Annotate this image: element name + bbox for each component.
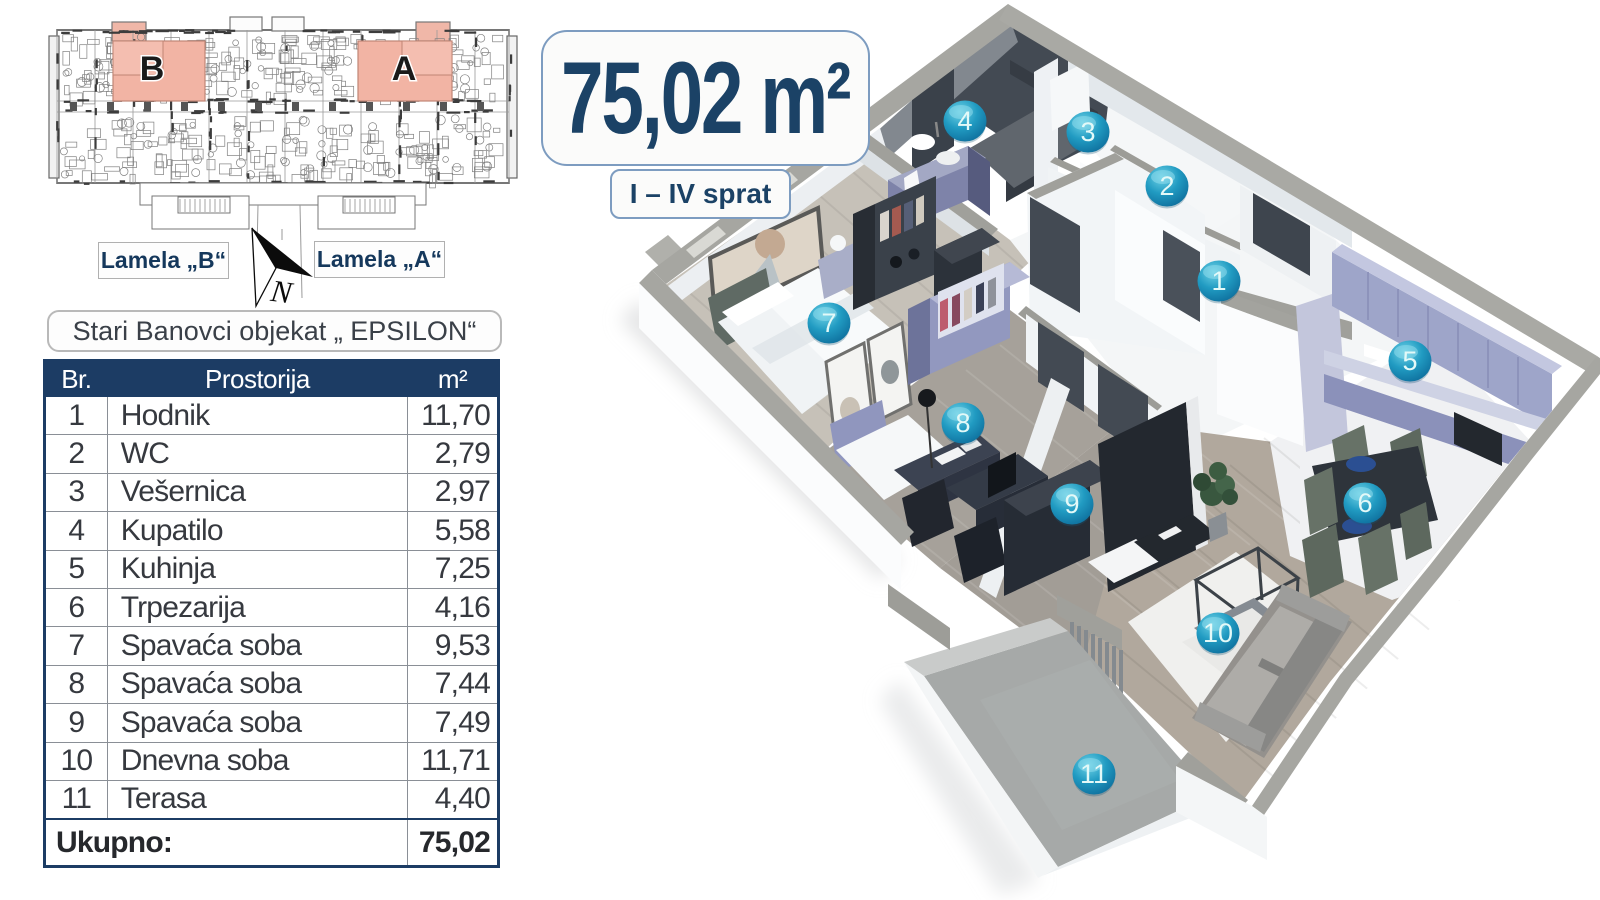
svg-text:3: 3 <box>1080 117 1095 147</box>
svg-text:5: 5 <box>1402 346 1417 376</box>
svg-text:4: 4 <box>957 106 972 136</box>
svg-text:7: 7 <box>821 308 836 338</box>
svg-text:10: 10 <box>1203 618 1233 648</box>
svg-text:1: 1 <box>1211 266 1226 296</box>
svg-text:A: A <box>392 50 417 88</box>
svg-text:N: N <box>268 273 297 310</box>
svg-text:6: 6 <box>1357 488 1372 518</box>
svg-text:B: B <box>140 50 165 88</box>
svg-text:9: 9 <box>1064 489 1079 519</box>
svg-text:2: 2 <box>1159 171 1174 201</box>
svg-text:11: 11 <box>1080 759 1108 789</box>
svg-text:8: 8 <box>955 408 970 438</box>
